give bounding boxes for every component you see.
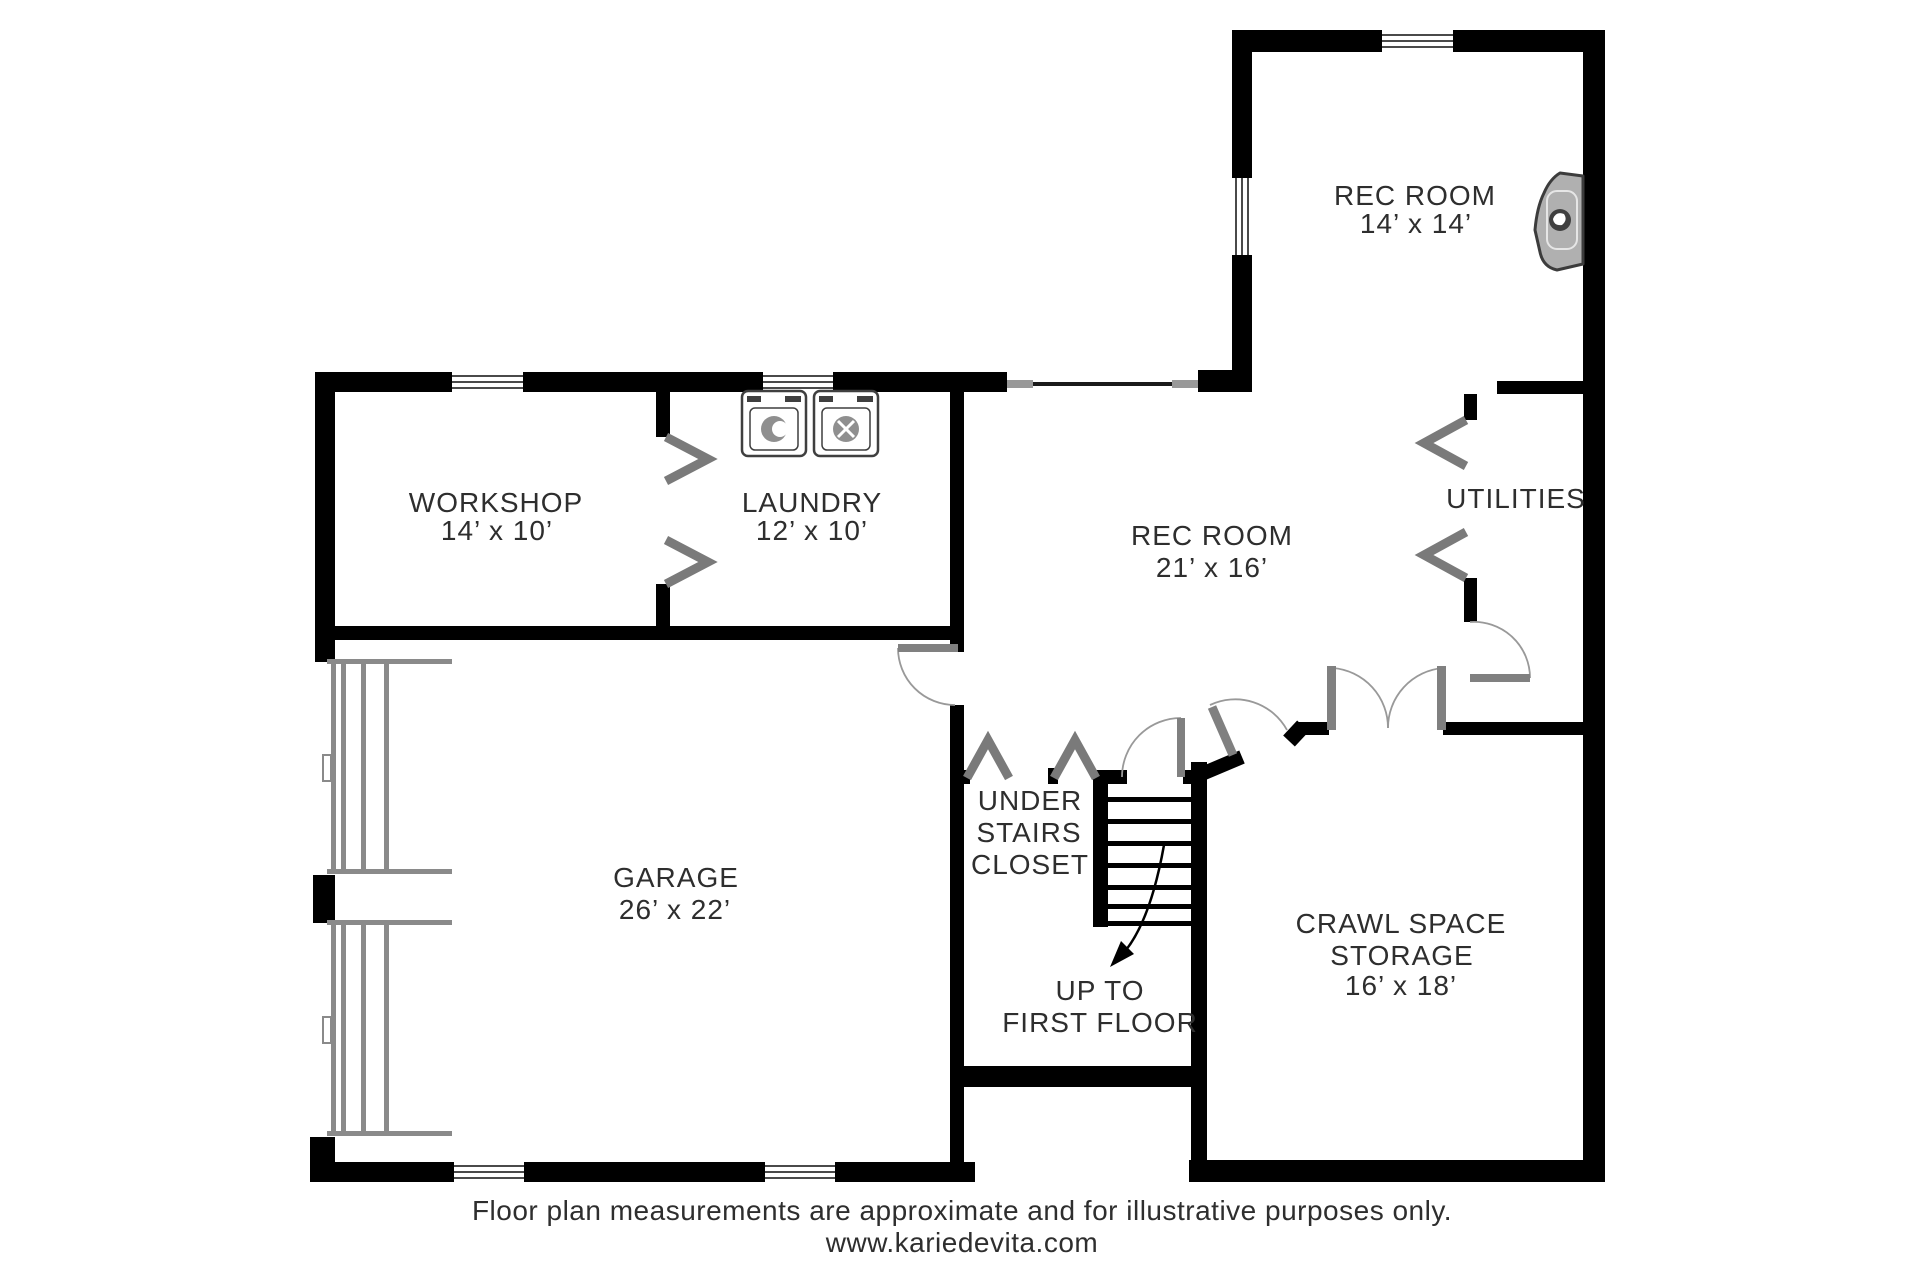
- wall: [1232, 52, 1252, 178]
- door-arc: [1122, 718, 1181, 777]
- window-icon: [763, 376, 833, 388]
- room-dims-rec-room-main: 21’ x 16’: [1156, 552, 1268, 583]
- room-dims-rec-room-upper: 14’ x 14’: [1360, 208, 1472, 239]
- wall: [1583, 30, 1605, 1182]
- wall: [1453, 30, 1605, 52]
- chevron-right-icon: [666, 437, 708, 481]
- cased-opening: [1007, 380, 1198, 388]
- room-dims-laundry: 12’ x 10’: [756, 515, 868, 546]
- chevron-left-icon: [1424, 532, 1466, 578]
- chevron-left-icon: [1424, 420, 1466, 466]
- wall: [1232, 30, 1382, 52]
- door-leaf: [1212, 707, 1233, 755]
- disclaimer-text: Floor plan measurements are approximate …: [472, 1195, 1452, 1226]
- garage-door-icon: [323, 659, 452, 874]
- room-dims-workshop: 14’ x 10’: [441, 515, 553, 546]
- door-leaf: [1177, 718, 1185, 777]
- door-leaf: [1470, 674, 1530, 682]
- room-label-laundry: LAUNDRY: [742, 487, 882, 518]
- door-leaf: [898, 644, 958, 652]
- garage-door-handle: [323, 1017, 331, 1043]
- room-label-utilities: UTILITIES: [1446, 483, 1586, 514]
- garage-door-track: [384, 920, 389, 1136]
- room-label-under-stairs-1: UNDER: [978, 785, 1083, 816]
- wall-fireplace-icon: [1535, 173, 1583, 270]
- room-label-crawl-2: STORAGE: [1330, 940, 1473, 971]
- wall: [1093, 770, 1108, 927]
- opening-chevrons: [666, 420, 1466, 778]
- door-arc: [1388, 668, 1443, 728]
- door-arc: [898, 648, 955, 705]
- garage-door-icon: [323, 920, 452, 1136]
- chevron-up-icon: [1054, 740, 1096, 778]
- wall: [315, 626, 964, 640]
- door-arc: [1333, 668, 1388, 728]
- stairs-label-1: UP TO: [1055, 975, 1144, 1006]
- stair-tread: [1108, 841, 1191, 846]
- room-label-garage: GARAGE: [613, 862, 739, 893]
- wall: [315, 392, 335, 662]
- stair-tread: [1108, 819, 1191, 824]
- diagonal-wall: [1289, 726, 1303, 741]
- stair-tread: [1108, 797, 1191, 802]
- wall: [1189, 1160, 1605, 1182]
- wall: [950, 388, 964, 652]
- wall: [315, 372, 452, 392]
- floor-plan-canvas: REC ROOM 14’ x 14’ REC ROOM 21’ x 16’ WO…: [0, 0, 1920, 1280]
- room-label-rec-room-main: REC ROOM: [1131, 520, 1293, 551]
- wall: [1443, 722, 1583, 735]
- wall: [950, 1066, 1207, 1087]
- wall: [1497, 381, 1583, 394]
- wall: [315, 1162, 454, 1182]
- wall: [523, 372, 763, 392]
- window-icon: [1236, 178, 1248, 255]
- window-icon: [452, 376, 523, 388]
- washer-icon: [742, 391, 806, 456]
- floor-plan-drawing: REC ROOM 14’ x 14’ REC ROOM 21’ x 16’ WO…: [0, 0, 1920, 1280]
- stair-tread: [1108, 885, 1191, 890]
- dryer-icon: [814, 391, 878, 456]
- room-label-crawl-1: CRAWL SPACE: [1296, 908, 1507, 939]
- footer: Floor plan measurements are approximate …: [472, 1195, 1452, 1258]
- stair-tread: [1108, 863, 1191, 868]
- garage-door-handle: [323, 755, 331, 781]
- room-dims-garage: 26’ x 22’: [619, 894, 731, 925]
- door-leaf: [1437, 666, 1446, 730]
- room-label-under-stairs-3: CLOSET: [971, 849, 1089, 880]
- wall: [656, 392, 670, 437]
- wall: [1191, 762, 1207, 1182]
- window-icon: [1382, 35, 1453, 47]
- garage-door-track: [361, 920, 366, 1136]
- chevron-up-icon: [967, 740, 1009, 778]
- wall: [313, 875, 335, 923]
- wall: [1464, 578, 1477, 622]
- wall: [1198, 370, 1252, 392]
- wall: [524, 1162, 765, 1182]
- website-text: www.kariedevita.com: [825, 1227, 1098, 1258]
- garage-door-track: [341, 920, 346, 1136]
- arrow-curve: [1126, 845, 1164, 950]
- stairs-label-2: FIRST FLOOR: [1002, 1007, 1198, 1038]
- room-label-workshop: WORKSHOP: [409, 487, 583, 518]
- stair-bottom-edge: [1108, 921, 1191, 926]
- wall: [1464, 394, 1477, 420]
- garage-door-track: [341, 659, 346, 874]
- room-label-under-stairs-2: STAIRS: [976, 817, 1081, 848]
- window-icon: [765, 1166, 835, 1178]
- opening-header-line: [1007, 382, 1198, 386]
- room-label-rec-room-upper: REC ROOM: [1334, 180, 1496, 211]
- door-arc: [1470, 622, 1530, 678]
- opening-header-cap: [1007, 380, 1033, 388]
- room-labels: REC ROOM 14’ x 14’ REC ROOM 21’ x 16’ WO…: [409, 180, 1586, 1038]
- door-leaf: [1327, 666, 1336, 730]
- chevron-right-icon: [666, 540, 708, 584]
- diagonal-wall: [1197, 757, 1242, 776]
- window-icon: [454, 1166, 524, 1178]
- garage-door-track: [384, 659, 389, 874]
- garage-door-track: [361, 659, 366, 874]
- opening-header-cap: [1172, 380, 1198, 388]
- wall: [833, 372, 1007, 392]
- room-dims-crawl: 16’ x 18’: [1345, 970, 1457, 1001]
